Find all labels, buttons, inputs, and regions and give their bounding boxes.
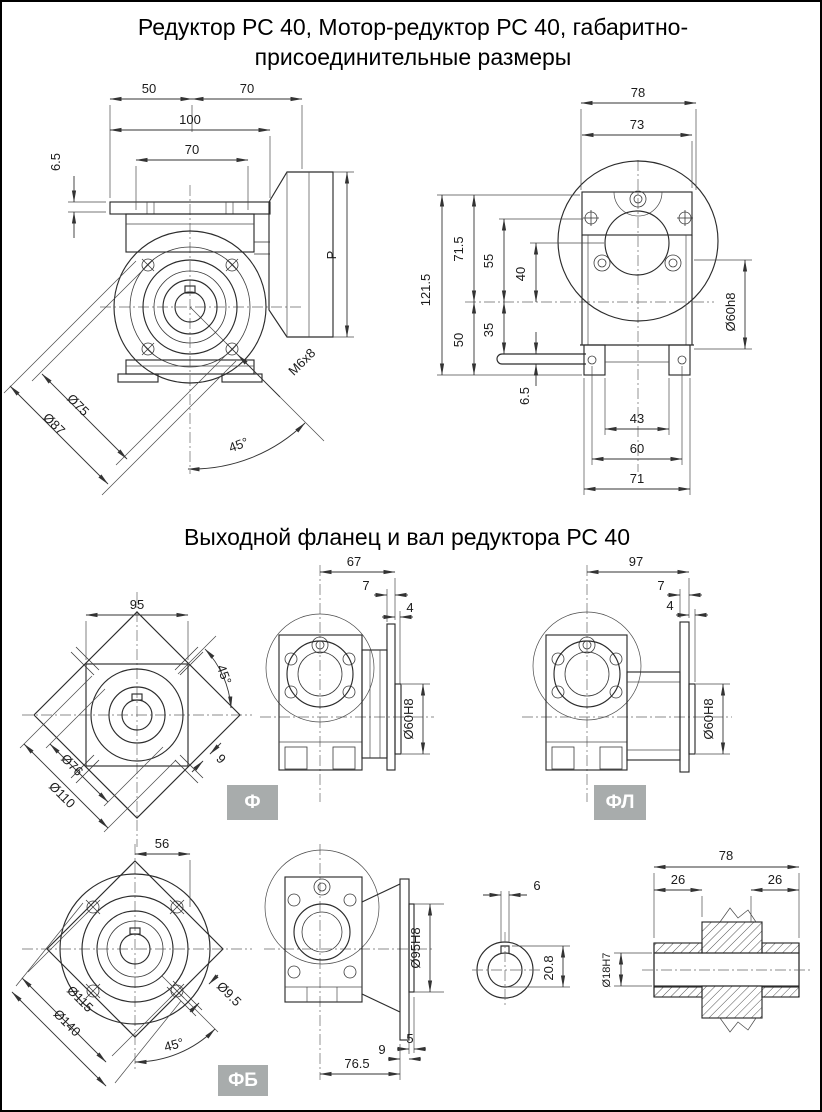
view-flange-fb-face: 56 Ø115 Ø140 Ø9.5 45° (12, 836, 252, 1086)
dim-9-fb: 9 (378, 1042, 385, 1057)
dim-40: 40 (513, 267, 528, 281)
dim-5-fb: 5 (406, 1031, 413, 1046)
dim-d110: Ø110 (46, 779, 78, 811)
dim-45deg-flange: 45° (214, 663, 235, 687)
dim-60H8-f: Ø60H8 (401, 698, 416, 739)
dim-9-slot: 9 (213, 751, 229, 767)
dim-71: 71 (630, 471, 644, 486)
dim-70-top: 70 (240, 81, 254, 96)
dim-73: 73 (630, 117, 644, 132)
dim-60: 60 (630, 441, 644, 456)
dim-67: 67 (347, 554, 361, 569)
dim-4-f: 4 (406, 600, 413, 615)
dim-d87: Ø87 (40, 410, 68, 438)
dim-d76: Ø76 (58, 751, 86, 779)
dim-50-rear: 50 (451, 333, 466, 347)
dim-35: 35 (481, 323, 496, 337)
dim-7-f: 7 (362, 578, 369, 593)
dim-6-key: 6 (533, 878, 540, 893)
dim-95H8: Ø95H8 (408, 927, 423, 968)
view-flange-fl-side: 97 7 4 Ø60H8 (522, 554, 732, 802)
dim-P: P (324, 251, 339, 260)
dim-95: 95 (130, 597, 144, 612)
dim-56: 56 (155, 836, 169, 851)
dim-121-5: 121.5 (418, 274, 433, 307)
dim-26-right: 26 (768, 872, 782, 887)
dim-6-5-rear: 6.5 (517, 387, 532, 405)
dim-4-fl: 4 (666, 598, 673, 613)
dim-71-5: 71.5 (451, 236, 466, 261)
dim-78: 78 (631, 85, 645, 100)
dim-d18H7: Ø18H7 (601, 953, 613, 988)
view-flange-fb-side: Ø95H8 5 9 76.5 (264, 844, 444, 1080)
view-gearbox-rear: 78 73 121.5 71.5 50 55 35 40 6.5 (418, 85, 752, 495)
dim-d75: Ø75 (64, 391, 92, 419)
dim-97: 97 (629, 554, 643, 569)
dim-60H8-fl: Ø60H8 (701, 698, 716, 739)
dim-50: 50 (142, 81, 156, 96)
dim-26-left: 26 (671, 872, 685, 887)
view-shaft-sections: 6 20.8 78 26 26 (472, 848, 812, 1032)
dim-m6x8: M6x8 (285, 345, 318, 378)
dim-43: 43 (630, 411, 644, 426)
dim-d9-5: Ø9.5 (214, 979, 245, 1010)
dim-6-5: 6.5 (48, 153, 63, 171)
technical-drawing-canvas: 50 70 100 70 6.5 P Ø75 (2, 2, 822, 1112)
dim-76-5: 76.5 (344, 1056, 369, 1071)
view-flange-f-side: 67 7 4 Ø60H8 (260, 554, 434, 802)
dim-100: 100 (179, 112, 201, 127)
dim-55: 55 (481, 254, 496, 268)
dim-45deg: 45° (227, 434, 251, 455)
view-gearbox-side: 50 70 100 70 6.5 P Ø75 (4, 81, 354, 495)
dim-70: 70 (185, 142, 199, 157)
view-flange-face: 95 45° Ø76 Ø110 9 (20, 592, 252, 847)
dim-7-fl: 7 (657, 578, 664, 593)
dim-20-8: 20.8 (541, 955, 556, 980)
drawing-sheet: Редуктор РС 40, Мотор-редуктор РС 40, га… (0, 0, 822, 1112)
dim-78-shaft: 78 (719, 848, 733, 863)
dim-60h8: Ø60h8 (723, 292, 738, 331)
